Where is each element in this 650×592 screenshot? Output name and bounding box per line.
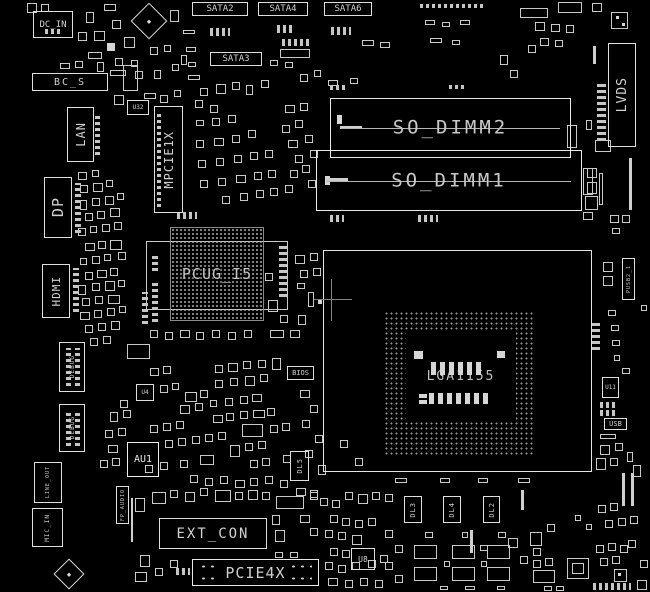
small-part xyxy=(94,31,105,41)
small-part xyxy=(310,253,318,261)
small-part xyxy=(180,405,190,414)
small-part xyxy=(218,432,226,440)
small-part xyxy=(248,490,258,500)
debug-header-2[interactable]: DEBUG xyxy=(59,404,85,452)
u11-chip[interactable]: U11 xyxy=(602,377,619,398)
lvds-connector[interactable]: LVDS xyxy=(608,43,636,147)
boardview-canvas[interactable]: DC_INBC_SLANDPHDMIDEBUGDEBUGLINE_OUTMIC_… xyxy=(0,0,650,592)
au1-chip-label: AU1 xyxy=(134,454,152,465)
small-part xyxy=(342,518,350,526)
small-part xyxy=(110,208,120,217)
small-part xyxy=(395,545,403,553)
small-part xyxy=(198,160,206,168)
small-part xyxy=(123,410,131,418)
small-part xyxy=(110,268,118,276)
trace-line xyxy=(131,498,133,542)
small-part xyxy=(108,445,118,453)
pad-strip xyxy=(600,402,617,408)
socket-center-pad xyxy=(447,393,452,404)
u4-chip[interactable]: U4 xyxy=(136,384,154,401)
small-part xyxy=(615,443,623,451)
small-part xyxy=(325,562,333,570)
small-part xyxy=(108,295,120,304)
small-part xyxy=(600,445,610,455)
small-part xyxy=(330,548,338,556)
sata2-connector[interactable]: SATA2 xyxy=(192,2,248,16)
small-part xyxy=(188,62,196,67)
small-part xyxy=(97,211,105,219)
small-part xyxy=(533,560,541,568)
small-part xyxy=(302,165,310,173)
pcie4x-slot[interactable]: PCIE4X xyxy=(192,559,319,586)
small-part xyxy=(603,262,613,272)
socket-center-pad xyxy=(438,393,443,404)
small-part xyxy=(118,428,126,436)
small-part xyxy=(360,578,368,586)
small-part xyxy=(210,105,218,113)
u32-chip[interactable]: U32 xyxy=(127,100,149,115)
small-part xyxy=(290,330,300,338)
socket-center-pad xyxy=(429,393,434,404)
lan-connector[interactable]: LAN xyxy=(67,107,94,162)
small-part xyxy=(267,408,275,416)
small-part xyxy=(248,130,256,138)
fp-audio-header[interactable]: FP_AUDIO xyxy=(116,486,129,524)
small-part xyxy=(586,524,592,530)
small-part xyxy=(215,365,223,373)
small-part xyxy=(338,532,346,540)
small-part xyxy=(600,434,616,439)
small-part xyxy=(328,578,338,586)
small-part xyxy=(235,480,245,488)
small-part xyxy=(355,520,363,528)
small-part xyxy=(82,298,90,306)
dl5-part-label: DL5 xyxy=(296,458,304,474)
small-part xyxy=(611,325,619,331)
small-part xyxy=(78,285,86,295)
small-part xyxy=(170,560,178,568)
small-part xyxy=(444,561,450,567)
pch-chip[interactable]: PCUG_I5 xyxy=(170,227,264,321)
small-part xyxy=(165,440,173,448)
small-part xyxy=(92,198,100,206)
small-part xyxy=(192,436,200,444)
small-part xyxy=(205,434,213,442)
small-part xyxy=(120,400,128,408)
small-part xyxy=(228,332,236,340)
small-part xyxy=(430,38,442,43)
small-part xyxy=(253,410,265,418)
small-part xyxy=(105,196,114,205)
small-part xyxy=(215,490,231,502)
small-part xyxy=(135,572,147,582)
small-part xyxy=(225,398,233,406)
small-part xyxy=(622,215,630,223)
small-part xyxy=(555,40,563,47)
small-part xyxy=(265,150,273,158)
small-part xyxy=(583,212,593,220)
small-part xyxy=(118,280,125,287)
trace-line xyxy=(593,46,596,64)
small-part xyxy=(262,458,270,466)
small-part xyxy=(368,518,376,526)
small-part xyxy=(78,32,87,41)
small-part xyxy=(440,478,450,483)
pad-strip xyxy=(597,84,606,141)
small-part xyxy=(85,213,93,221)
mic-in-jack[interactable]: MIC_IN xyxy=(32,508,63,547)
small-part xyxy=(276,496,304,509)
fiducial-dot xyxy=(147,19,151,23)
dl5-part[interactable]: DL5 xyxy=(290,451,309,481)
small-part xyxy=(212,118,220,126)
small-part xyxy=(240,193,248,201)
sata3-connector[interactable]: SATA3 xyxy=(210,52,262,66)
small-part xyxy=(596,458,606,470)
lvds-connector-label: LVDS xyxy=(615,77,630,112)
small-part xyxy=(452,567,475,581)
small-part xyxy=(627,452,633,462)
pad-strip xyxy=(210,28,230,36)
small-part xyxy=(75,61,83,68)
small-part xyxy=(176,421,184,429)
small-part xyxy=(630,516,638,524)
small-part xyxy=(575,515,581,521)
dl4-part[interactable]: DL4 xyxy=(443,496,461,523)
small-part xyxy=(342,550,350,558)
socket-center-pad xyxy=(414,351,423,359)
small-part xyxy=(110,412,118,422)
usb-part[interactable]: USB xyxy=(604,418,627,430)
socket-center-pad xyxy=(465,393,470,404)
pad-strip xyxy=(95,113,100,155)
dc-in-connector[interactable]: DC_IN xyxy=(33,11,73,38)
small-part xyxy=(262,492,270,500)
small-part xyxy=(608,310,616,316)
small-part xyxy=(90,338,98,346)
small-part xyxy=(92,256,100,264)
small-part xyxy=(102,224,110,232)
small-part xyxy=(611,12,628,29)
small-part xyxy=(314,70,321,77)
small-part xyxy=(497,586,505,590)
small-part xyxy=(350,78,358,84)
so-dimm1-slot[interactable]: SO_DIMM1 xyxy=(316,150,582,211)
debug-header-1[interactable]: DEBUG xyxy=(59,342,85,392)
sata4-connector[interactable]: SATA4 xyxy=(258,2,308,16)
small-part xyxy=(256,190,264,198)
socket-center-pad xyxy=(474,393,479,404)
bios-chip[interactable]: BIOS xyxy=(287,366,314,380)
small-part xyxy=(90,226,97,233)
small-part xyxy=(385,562,393,570)
small-part xyxy=(114,95,124,105)
small-part xyxy=(80,200,87,210)
mpcie1x-slot[interactable]: MPCIE1X xyxy=(154,106,183,213)
small-part xyxy=(518,478,530,483)
small-part xyxy=(275,530,285,542)
small-part xyxy=(295,155,303,163)
small-part xyxy=(232,82,240,90)
pusb2-1-part-label: PUSB2_1 xyxy=(626,265,632,293)
pch-chip-label: PCUG_I5 xyxy=(182,265,252,283)
small-part xyxy=(124,37,135,48)
small-part xyxy=(425,532,433,538)
small-part xyxy=(533,548,541,556)
hdmi-connector[interactable]: HDMI xyxy=(42,264,70,318)
small-part xyxy=(118,252,126,260)
small-part xyxy=(110,240,122,250)
small-part xyxy=(480,545,488,551)
small-part xyxy=(345,580,353,588)
small-part xyxy=(200,455,214,465)
small-part xyxy=(188,75,200,80)
small-part xyxy=(100,460,108,468)
small-part xyxy=(452,40,460,45)
small-part xyxy=(395,478,407,483)
small-part xyxy=(572,563,584,574)
small-part xyxy=(612,340,620,346)
small-part xyxy=(358,494,368,504)
small-part xyxy=(205,478,213,486)
small-part xyxy=(498,532,506,538)
small-part xyxy=(226,413,234,421)
bc-s-connector-label: BC_S xyxy=(54,77,86,88)
small-part xyxy=(295,255,305,264)
small-part xyxy=(330,515,338,523)
small-part xyxy=(218,178,226,186)
debug-header-2-label: DEBUG xyxy=(69,416,76,439)
small-part xyxy=(297,283,305,289)
small-part xyxy=(345,492,353,500)
small-part xyxy=(250,460,258,468)
trace-line xyxy=(631,473,634,506)
socket-center-area: LGA1155 xyxy=(406,331,516,421)
cpu-socket[interactable]: LGA1155 xyxy=(323,250,592,472)
pad-strip xyxy=(331,27,351,35)
small-part xyxy=(242,424,263,437)
small-part xyxy=(628,540,636,548)
small-part xyxy=(144,93,156,99)
small-part xyxy=(300,390,310,398)
small-part xyxy=(195,100,203,108)
small-part xyxy=(310,405,318,413)
socket-center-pad xyxy=(419,394,427,398)
small-part xyxy=(220,476,228,484)
pcie4x-slot-label: PCIE4X xyxy=(220,564,290,582)
u8-chip[interactable]: U8 xyxy=(351,548,375,570)
small-part xyxy=(234,155,242,163)
line-out-jack-label: LINE_OUT xyxy=(45,466,51,498)
small-part xyxy=(200,88,208,96)
small-part xyxy=(260,374,268,382)
small-part xyxy=(288,140,298,148)
small-part xyxy=(160,462,168,470)
dl2-part[interactable]: DL2 xyxy=(483,496,500,523)
small-part xyxy=(622,368,630,374)
small-part xyxy=(185,492,195,502)
small-part xyxy=(508,538,518,548)
small-part xyxy=(164,45,171,52)
small-part xyxy=(586,120,592,130)
u32-chip-label: U32 xyxy=(133,104,144,111)
crosshair-h xyxy=(314,299,352,300)
small-part xyxy=(115,58,123,66)
small-part xyxy=(325,530,333,538)
small-part xyxy=(240,396,248,404)
ext-con-connector[interactable]: EXT_CON xyxy=(159,518,267,549)
small-part xyxy=(280,49,310,58)
pad-strip xyxy=(73,268,79,312)
small-part xyxy=(300,74,308,82)
small-part xyxy=(107,308,115,316)
small-part xyxy=(310,528,318,536)
mic-in-jack-label: MIC_IN xyxy=(44,514,51,542)
small-part xyxy=(150,47,158,55)
dp-connector[interactable]: DP xyxy=(44,177,72,238)
small-part xyxy=(215,380,223,388)
small-part xyxy=(106,180,113,187)
small-part xyxy=(290,170,298,178)
small-part xyxy=(103,336,111,344)
small-part xyxy=(535,22,545,31)
small-part xyxy=(186,47,196,52)
au1-chip[interactable]: AU1 xyxy=(127,442,159,477)
small-part xyxy=(127,344,150,359)
lan-connector-label: LAN xyxy=(74,122,88,147)
pad-strip xyxy=(142,292,148,324)
dl4-part-label: DL4 xyxy=(448,502,456,518)
bc-s-connector[interactable]: BC_S xyxy=(32,73,108,91)
sata6-connector[interactable]: SATA6 xyxy=(324,2,372,16)
so-dimm1-slot-label: SO_DIMM1 xyxy=(317,169,581,191)
small-part xyxy=(295,120,303,128)
small-part xyxy=(285,105,295,113)
so-dimm2-slot[interactable]: SO_DIMM2 xyxy=(330,98,571,158)
small-part xyxy=(300,103,308,111)
u11-chip-label: U11 xyxy=(605,384,616,391)
small-part xyxy=(620,545,628,553)
small-part xyxy=(170,490,178,498)
small-part xyxy=(462,532,468,538)
dl3-part[interactable]: DL3 xyxy=(404,496,422,523)
small-part xyxy=(265,476,273,484)
small-part xyxy=(150,330,158,338)
small-part xyxy=(235,492,243,500)
small-part xyxy=(180,330,190,338)
debug-header-1-label: DEBUG xyxy=(69,355,76,378)
small-part xyxy=(195,403,203,411)
small-part xyxy=(93,183,103,192)
bios-chip-label: BIOS xyxy=(292,369,309,377)
small-part xyxy=(85,325,93,333)
small-part xyxy=(583,168,593,195)
small-part xyxy=(163,366,171,374)
small-part xyxy=(135,498,145,512)
small-part xyxy=(163,423,171,431)
small-part xyxy=(540,38,549,46)
small-part xyxy=(94,310,102,318)
small-part xyxy=(252,394,262,402)
small-part xyxy=(487,567,510,581)
small-part xyxy=(190,475,198,483)
small-part xyxy=(268,170,276,178)
small-part xyxy=(180,460,188,468)
small-part xyxy=(104,254,111,261)
small-part xyxy=(302,420,310,428)
small-part xyxy=(228,363,238,372)
small-part xyxy=(97,62,104,72)
pad-strip xyxy=(152,255,158,271)
socket-center-pad xyxy=(467,362,472,375)
hdmi-connector-label: HDMI xyxy=(50,276,63,307)
small-part xyxy=(520,8,548,18)
small-part xyxy=(385,530,393,538)
small-part xyxy=(612,228,620,234)
so-dimm2-slot-label: SO_DIMM2 xyxy=(331,117,570,139)
small-part xyxy=(300,515,310,523)
small-part xyxy=(500,55,508,65)
small-part xyxy=(385,494,393,502)
pad-strip xyxy=(176,568,190,575)
socket-center-pad xyxy=(483,393,488,404)
small-part xyxy=(520,556,528,564)
small-part xyxy=(183,30,195,34)
small-part xyxy=(119,306,126,313)
small-part xyxy=(308,180,316,188)
small-part xyxy=(610,458,618,466)
small-part xyxy=(98,241,106,249)
sata6-connector-label: SATA6 xyxy=(334,4,361,14)
small-part xyxy=(272,515,280,525)
small-part xyxy=(608,543,616,551)
small-part xyxy=(258,360,266,368)
small-part xyxy=(97,270,107,278)
small-part xyxy=(414,545,437,559)
small-part xyxy=(530,532,542,546)
small-part xyxy=(98,323,106,331)
sata3-connector-label: SATA3 xyxy=(222,54,249,64)
line-out-jack[interactable]: LINE_OUT xyxy=(34,462,62,503)
small-part xyxy=(244,330,252,338)
pusb2-1-part[interactable]: PUSB2_1 xyxy=(622,258,635,300)
small-part xyxy=(92,283,100,291)
small-part xyxy=(599,173,603,205)
small-part xyxy=(243,361,251,369)
small-part xyxy=(547,524,555,532)
small-part xyxy=(285,62,293,68)
small-part xyxy=(332,500,340,508)
small-part xyxy=(640,560,648,568)
small-part xyxy=(566,25,574,33)
small-part xyxy=(80,312,90,320)
small-part xyxy=(104,4,116,11)
dl3-part-label: DL3 xyxy=(409,502,417,518)
small-part xyxy=(85,243,95,251)
small-part xyxy=(268,300,278,312)
small-part xyxy=(240,411,248,419)
small-part xyxy=(228,115,236,123)
small-part xyxy=(213,415,223,423)
sata2-connector-label: SATA2 xyxy=(206,4,233,14)
small-part xyxy=(185,392,197,402)
small-part xyxy=(216,84,226,94)
small-part xyxy=(154,70,161,79)
small-part xyxy=(230,378,238,386)
socket-center-pad xyxy=(458,362,463,375)
small-part xyxy=(375,580,383,588)
small-part xyxy=(598,505,606,513)
